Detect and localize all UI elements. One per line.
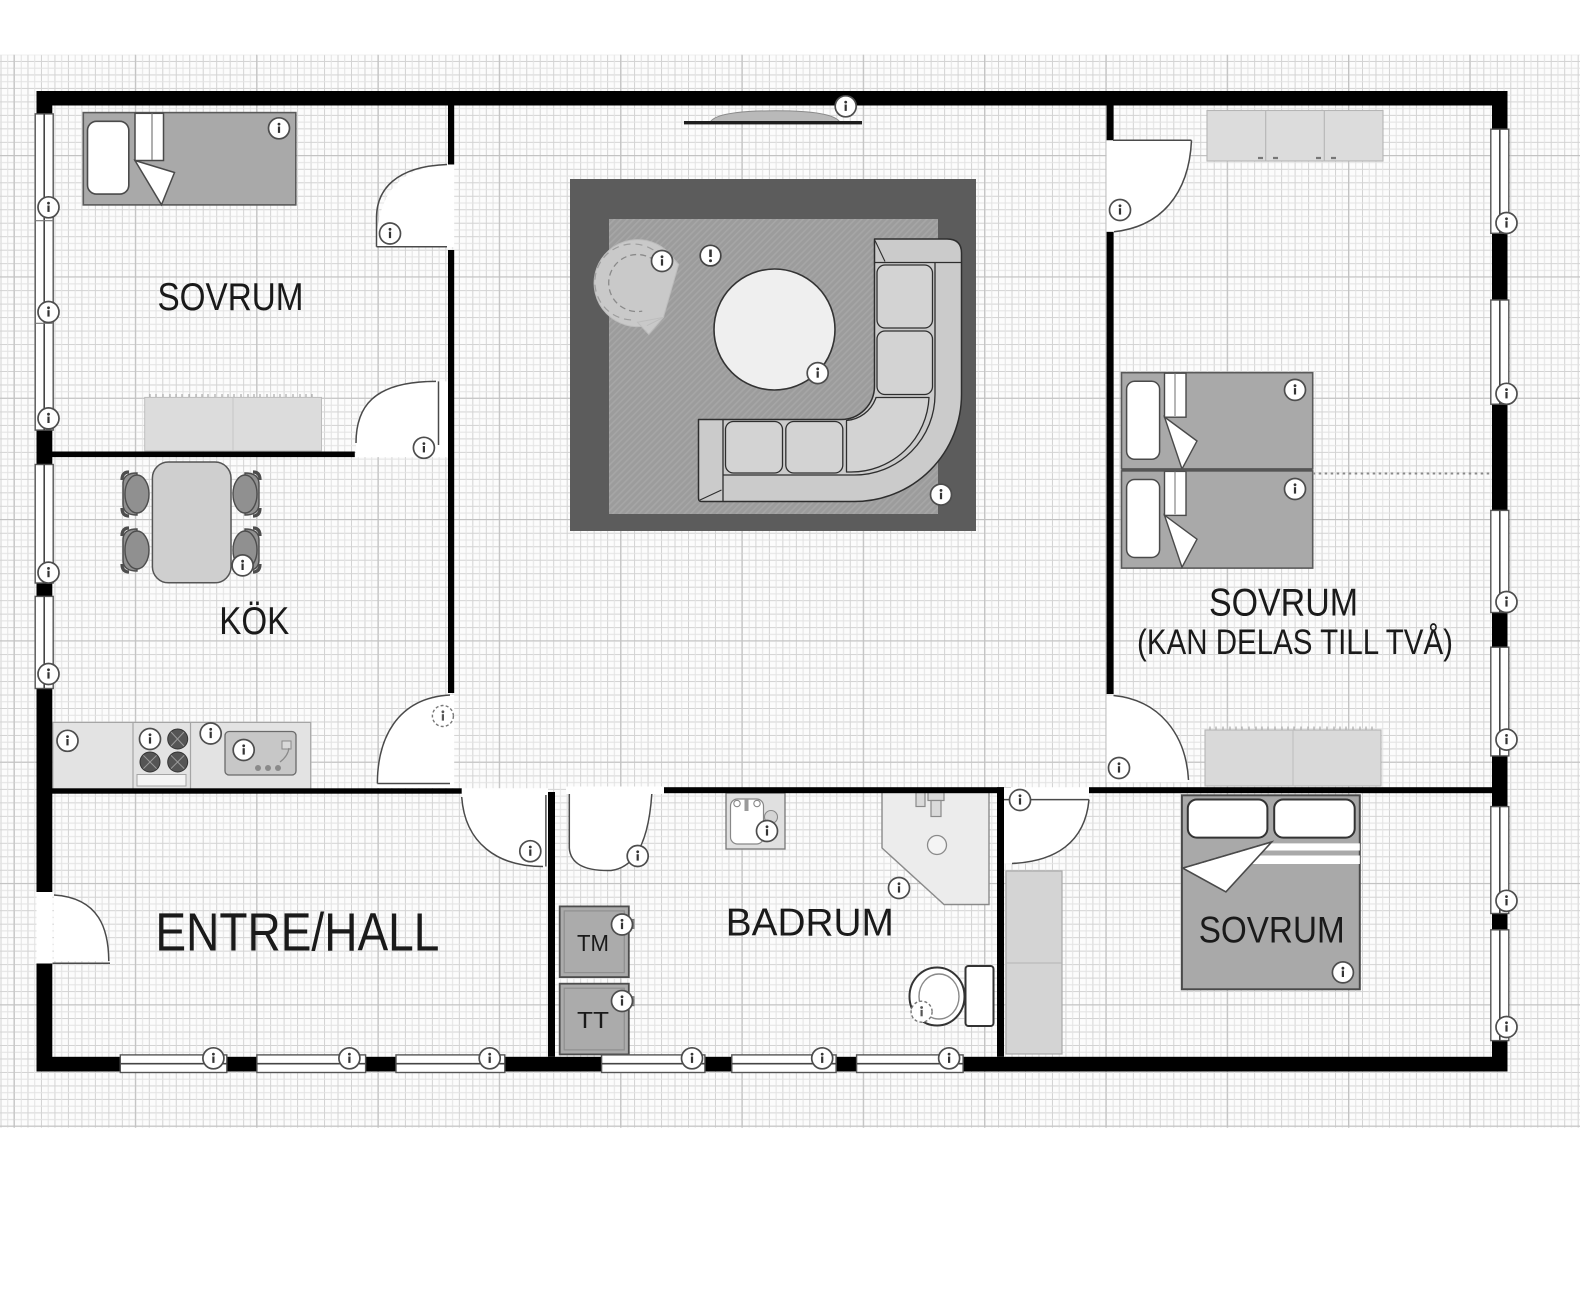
- svg-text:SOVRUM: SOVRUM: [158, 276, 304, 319]
- svg-text:(KAN DELAS TILL TVÅ): (KAN DELAS TILL TVÅ): [1137, 623, 1453, 662]
- svg-text:BADRUM: BADRUM: [726, 902, 894, 945]
- svg-text:SOVRUM: SOVRUM: [1209, 582, 1358, 625]
- svg-text:SOVRUM: SOVRUM: [1199, 910, 1345, 951]
- svg-text:TT: TT: [577, 1007, 609, 1033]
- svg-text:TM: TM: [577, 930, 609, 956]
- svg-text:ENTRE/HALL: ENTRE/HALL: [155, 903, 439, 963]
- svg-text:KÖK: KÖK: [219, 600, 289, 643]
